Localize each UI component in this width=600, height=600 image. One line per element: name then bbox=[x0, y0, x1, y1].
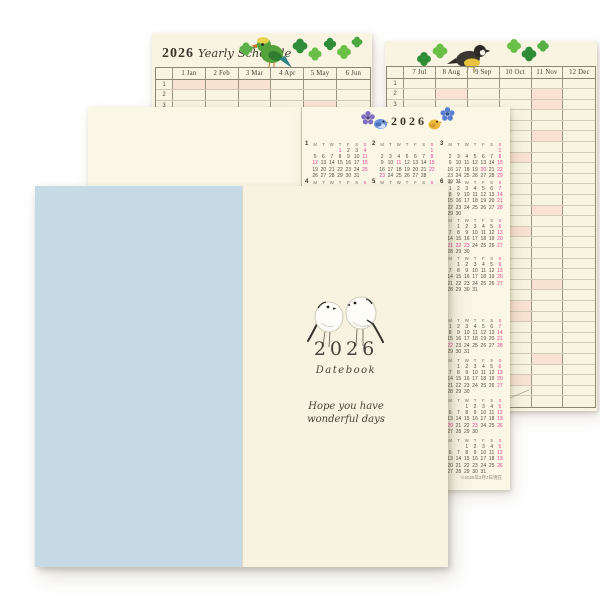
mini-calendar-2026-12: 12MTWTFSS1234567891011121314151617181920… bbox=[440, 255, 504, 293]
cover-message-line2: wonderful days bbox=[243, 413, 449, 426]
mini-calendar-2026-1: 1MTWTFSS12345678910111213141516171819202… bbox=[305, 141, 369, 179]
cover-message-line1: Hope you have bbox=[243, 400, 449, 413]
cover-year: 2026 bbox=[243, 338, 449, 360]
mini-calendar-2026-2: 2MTWTFSS12345678910111213141516171819202… bbox=[372, 141, 436, 179]
cover-subtitle: Datebook bbox=[243, 365, 449, 376]
mini-calendar-2026-6: 6MTWTFSS12345678910111213141516171819202… bbox=[440, 179, 504, 217]
mini-calendar-2027-9: 9MTWTFSS12345678910111213141516171819202… bbox=[440, 397, 504, 435]
cover-message: Hope you have wonderful days bbox=[243, 400, 449, 426]
cover-blue-panel bbox=[35, 186, 242, 567]
mini-calendar-2026-9: 9MTWTFSS12345678910111213141516171819202… bbox=[440, 217, 504, 255]
mini-calendar-2027-6: 6MTWTFSS12345678910111213141516171819202… bbox=[440, 357, 504, 395]
blue-flower-icon bbox=[440, 107, 455, 121]
mini-calendar-2027-12: 12MTWTFSS1234567891011121314151617181920… bbox=[440, 437, 504, 475]
datebook-cover: 2026 Datebook Hope you have wonderful da… bbox=[35, 186, 448, 567]
mini-calendar-2027-3: 3MTWTFSS12345678910111213141516171819202… bbox=[440, 317, 504, 355]
yearly-title-year: 2026 bbox=[162, 46, 194, 61]
small-blue-bird-icon bbox=[373, 117, 389, 130]
cover-front-panel: 2026 Datebook Hope you have wonderful da… bbox=[242, 186, 448, 567]
datebook-product-photo: 2026Yearly Schedule 1 Jan2 Feb3 Mar4 Apr… bbox=[0, 0, 600, 600]
